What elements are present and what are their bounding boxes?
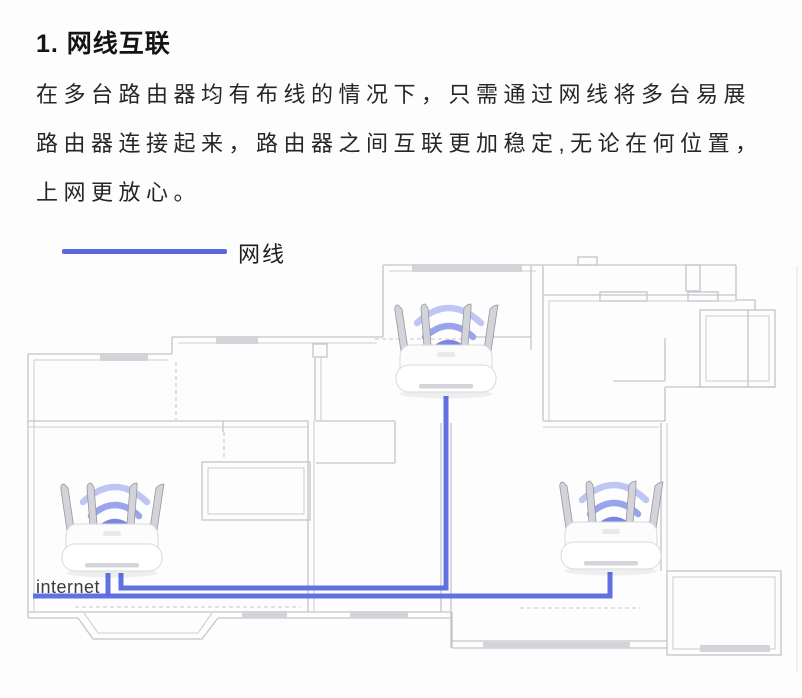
bay-window <box>78 613 218 639</box>
floorplan-diagram: internet <box>0 0 802 698</box>
walls <box>28 257 797 672</box>
router-right <box>560 481 663 576</box>
door-openings <box>75 339 640 608</box>
router-top <box>395 304 498 399</box>
cable-left-to-top-router <box>121 396 446 588</box>
router-left <box>61 483 164 578</box>
internet-label: internet <box>36 577 100 597</box>
